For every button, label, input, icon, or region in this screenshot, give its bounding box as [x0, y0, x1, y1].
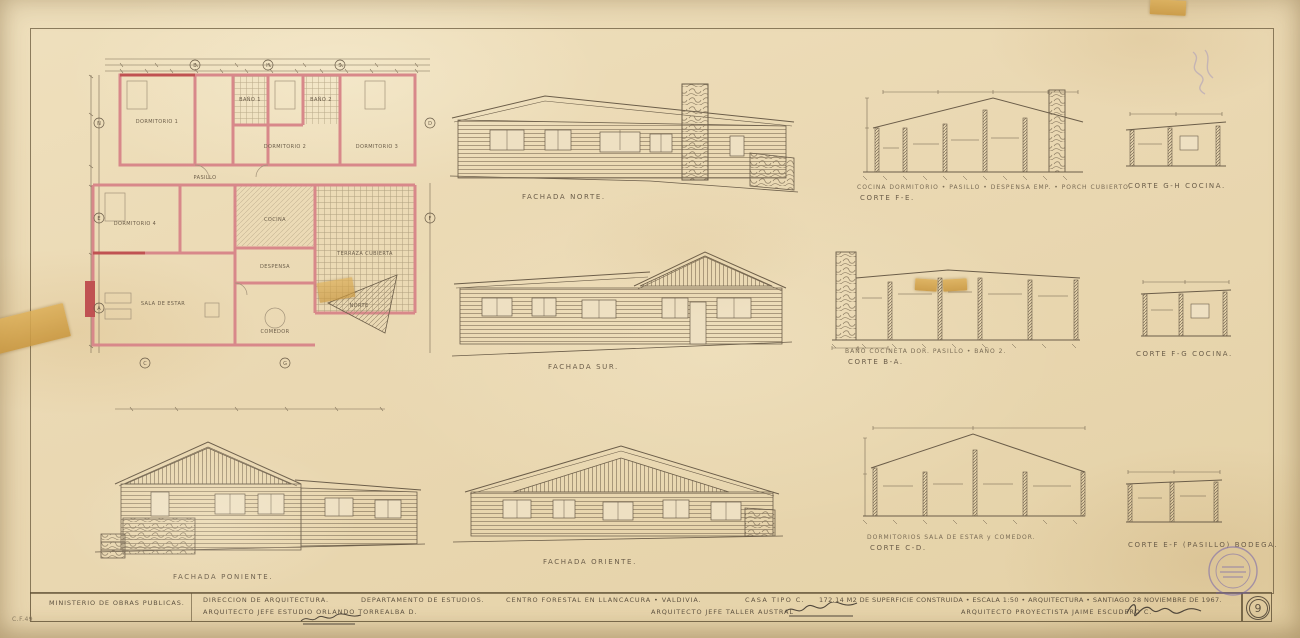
ministry-label: MINISTERIO DE OBRAS PUBLICAS.: [49, 599, 185, 607]
section-fe-label: CORTE F-E.: [860, 194, 915, 202]
tape-piece: [915, 278, 938, 292]
plan-hatched-areas: [234, 76, 414, 312]
marker-letter: C: [143, 361, 147, 367]
floor-plan: DORMITORIO 1 DORMITORIO 2 DORMITORIO 3 D…: [85, 53, 440, 425]
elevation-west: [95, 432, 425, 572]
elevation-south-label: FACHADA SUR.: [548, 363, 619, 371]
marker-letter: A: [97, 306, 101, 312]
marker-letter: B: [193, 63, 197, 69]
approval-stamp-icon: [1202, 543, 1264, 605]
section-fg: [1133, 276, 1238, 348]
room-label-terraza: TERRAZA CUBIERTA: [336, 251, 393, 257]
signature-proyectista: [1123, 599, 1207, 619]
room-label-comedor: COMEDOR: [261, 329, 290, 335]
project-label: CENTRO FORESTAL EN LLANCACURA • VALDIVIA…: [506, 596, 702, 604]
elevation-east: [453, 438, 783, 558]
section-ba-label: CORTE B-A.: [848, 358, 904, 366]
section-ef: [1116, 466, 1231, 536]
tape-piece: [1150, 0, 1187, 16]
marker-letter: N: [97, 121, 101, 127]
room-label-bano1: BAÑO 1: [239, 96, 261, 103]
marker-letter: D: [428, 121, 432, 127]
room-label-dorm2: DORMITORIO 2: [264, 144, 307, 150]
scanned-sheet: DORMITORIO 1 DORMITORIO 2 DORMITORIO 3 D…: [0, 0, 1300, 638]
title-block-divider: [191, 593, 192, 621]
department-label: DEPARTAMENTO DE ESTUDIOS.: [361, 596, 485, 604]
direction-label: DIRECCION DE ARQUITECTURA.: [203, 596, 329, 604]
room-label-dorm1: DORMITORIO 1: [136, 119, 179, 125]
room-label-sala: SALA DE ESTAR: [141, 301, 185, 307]
section-fe-caption: COCINA DORMITORIO • PASILLO • DESPENSA E…: [857, 184, 1132, 191]
section-cd-caption: DORMITORIOS SALA DE ESTAR y COMEDOR.: [867, 534, 1036, 541]
room-label-dorm4: DORMITORIO 4: [114, 221, 157, 227]
elevation-north: [450, 78, 800, 208]
section-cd: [853, 424, 1093, 534]
title-block: MINISTERIO DE OBRAS PUBLICAS. DIRECCION …: [30, 592, 1242, 622]
section-ba-caption: BAÑO COCINETA DOR. PASILLO • BAÑO 2.: [845, 348, 1006, 355]
pencil-scribble: [1185, 48, 1227, 100]
elevation-west-label: FACHADA PONIENTE.: [173, 573, 273, 581]
north-label: NORTE: [350, 303, 369, 309]
elevation-north-label: FACHADA NORTE.: [522, 193, 606, 201]
corner-code: C.F.49: [12, 616, 33, 623]
chief-taller-label: ARQUITECTO JEFE TALLER AUSTRAL: [651, 608, 794, 616]
marker-letter: H: [266, 63, 270, 69]
signature-torrealba: [299, 613, 363, 625]
section-ba: [828, 248, 1088, 353]
marker-letter: E: [97, 216, 100, 222]
room-label-despensa: DESPENSA: [260, 264, 290, 270]
marker-letter: F: [429, 216, 432, 222]
section-cd-label: CORTE C-D.: [870, 544, 927, 552]
section-gh-label: CORTE G-H COCINA.: [1128, 182, 1226, 190]
section-fe: [843, 88, 1093, 193]
tape-piece: [943, 278, 968, 291]
room-label-dorm3: DORMITORIO 3: [356, 144, 399, 150]
elevation-south: [452, 242, 792, 372]
marker-letter: G: [283, 361, 287, 367]
room-label-cocina: COCINA: [264, 217, 286, 223]
elevation-east-label: FACHADA ORIENTE.: [543, 558, 637, 566]
section-fg-label: CORTE F-G COCINA.: [1136, 350, 1233, 358]
section-gh: [1118, 108, 1233, 180]
room-label-pasillo: PASILLO: [194, 175, 217, 181]
signature-taller: [783, 602, 861, 618]
room-label-bano2: BAÑO 2: [310, 96, 332, 103]
marker-letter: S: [338, 63, 341, 69]
